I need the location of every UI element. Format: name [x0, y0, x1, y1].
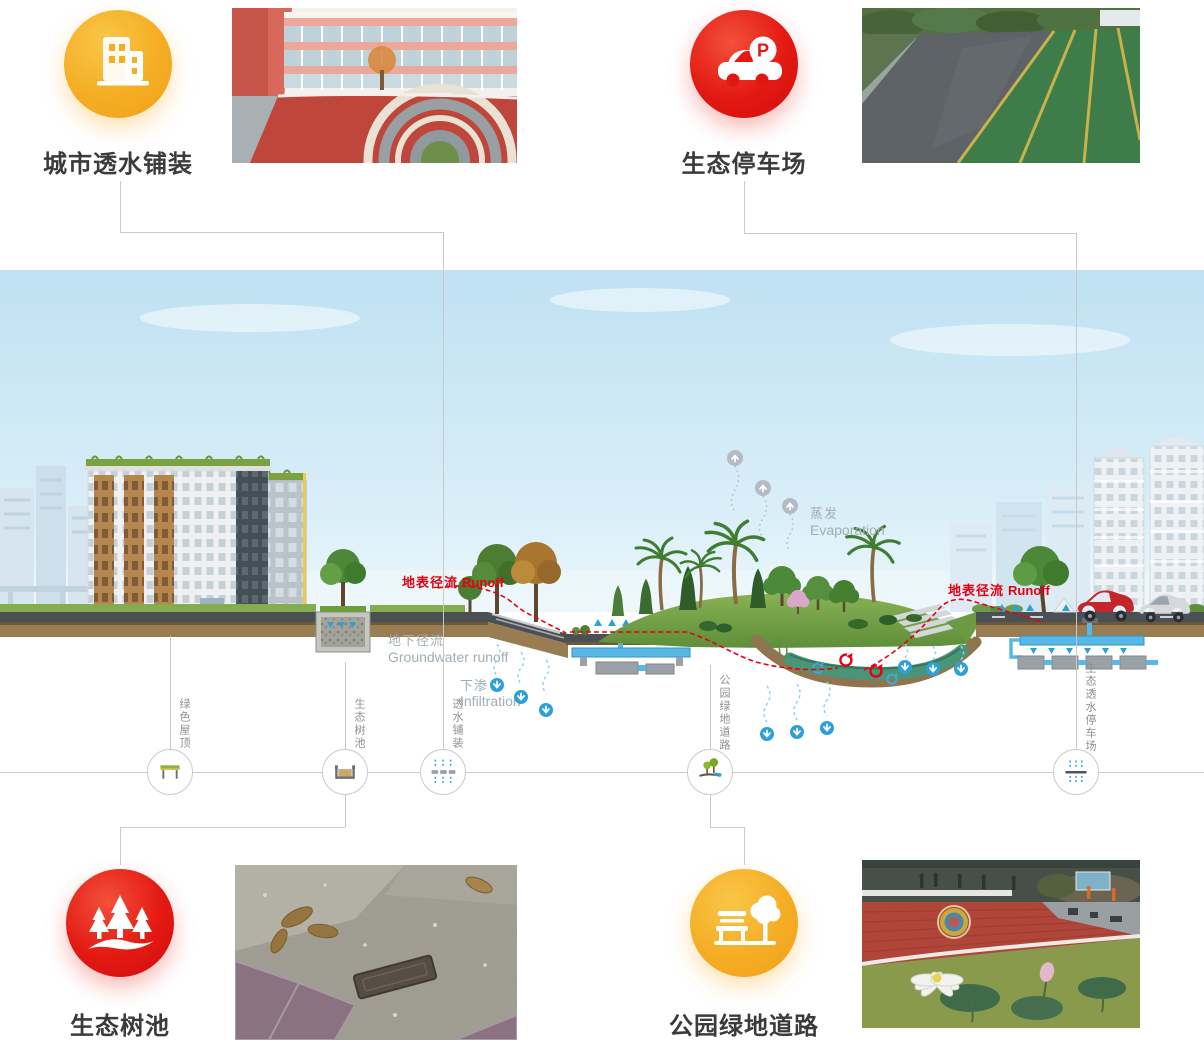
school-building	[232, 8, 517, 98]
drips-below-pond	[760, 682, 834, 741]
connector-top-left-v1	[120, 181, 121, 232]
city-cross-section-illustration: 地表径流 Runoff 地表径流 Runoff 地下径流 Groundwater…	[0, 270, 1204, 770]
marker-permeable-paving	[420, 749, 466, 795]
apartments-left	[84, 457, 306, 613]
connector-bottom-right-v1	[710, 795, 711, 827]
infiltration-label-zh: 下渗	[460, 678, 488, 693]
runoff-label-left-zh: 地表径流	[402, 575, 458, 590]
photo-eco-tree-pit	[235, 865, 517, 1040]
buildings-icon	[64, 10, 172, 118]
trees-icon	[66, 869, 174, 977]
car-parking-icon: P	[690, 10, 798, 118]
marker-line-park-road	[710, 665, 711, 749]
park-greenway-label: 公园绿地道路	[644, 1006, 844, 1041]
connector-top-right-v2	[1076, 233, 1077, 749]
connector-bottom-left-v2	[120, 827, 121, 865]
photo-parking-graphic	[862, 8, 1140, 163]
eco-tree-pit-label: 生态树池	[20, 1006, 220, 1041]
evaporation-label-zh: 蒸发	[810, 506, 838, 521]
groundwater-label-zh: 地下径流	[388, 633, 444, 648]
photo-gravel-graphic	[235, 865, 517, 1040]
connector-bottom-left-v1	[345, 795, 346, 827]
marker-line-tree-pit	[345, 662, 346, 749]
runoff-label-right-en: Runoff	[1008, 583, 1051, 598]
parking-p-letter: P	[757, 41, 769, 61]
marker-line-green-roof	[170, 636, 171, 749]
connector-top-right-v1	[744, 181, 745, 233]
sponge-city-infographic: 地表径流 Runoff 地表径流 Runoff 地下径流 Groundwater…	[0, 0, 1204, 1062]
park-road-icon	[688, 749, 732, 795]
connector-top-left-h	[120, 232, 444, 233]
photo-urban-permeable-paving	[232, 8, 517, 163]
marker-tree-pit	[322, 749, 368, 795]
connector-bottom-right-h	[710, 827, 744, 828]
infiltration-label-en: Infiltration	[460, 693, 521, 709]
photo-courtyard-graphic	[232, 8, 517, 163]
marker-label-permeable-paving: 透水铺装	[449, 698, 465, 750]
bench-tree-icon	[690, 869, 798, 977]
marker-label-park-road: 公园绿地道路	[716, 674, 732, 752]
marker-label-eco-parking: 生态透水停车场	[1082, 662, 1098, 753]
connector-bottom-right-v2	[744, 827, 745, 865]
photo-park-greenway	[862, 860, 1140, 1028]
photo-eco-parking-lot	[862, 8, 1140, 163]
eco-tree-pit-icon	[66, 869, 174, 977]
tree-pit-icon	[323, 749, 367, 795]
marker-label-tree-pit: 生态树池	[351, 698, 367, 750]
urban-permeable-paving-icon	[64, 10, 172, 118]
connector-bottom-left-h	[120, 827, 345, 828]
marker-eco-parking	[1053, 749, 1099, 795]
urban-permeable-paving-label: 城市透水铺装	[18, 144, 218, 179]
groundwater-label-en: Groundwater runoff	[388, 649, 508, 665]
marker-green-roof	[147, 749, 193, 795]
courtyard-ground	[232, 88, 517, 163]
eco-parking-lot-icon: P	[690, 10, 798, 118]
eco-parking-icon	[1054, 749, 1098, 795]
runoff-label-left-en: Runoff	[462, 575, 505, 590]
evaporation-label-en: Evaporation	[810, 522, 885, 538]
eco-parking-lot-label: 生态停车场	[644, 144, 844, 179]
runoff-label-right-zh: 地表径流	[948, 583, 1004, 598]
marker-park-road	[687, 749, 733, 795]
connector-top-right-h	[744, 233, 1077, 234]
marker-label-green-roof: 绿色屋顶	[176, 698, 192, 750]
permeable-paving-icon	[421, 749, 465, 795]
park-greenway-icon	[690, 869, 798, 977]
photo-plaza-graphic	[862, 860, 1140, 1028]
connector-top-left-v2	[443, 232, 444, 749]
green-roof-icon	[148, 749, 192, 795]
